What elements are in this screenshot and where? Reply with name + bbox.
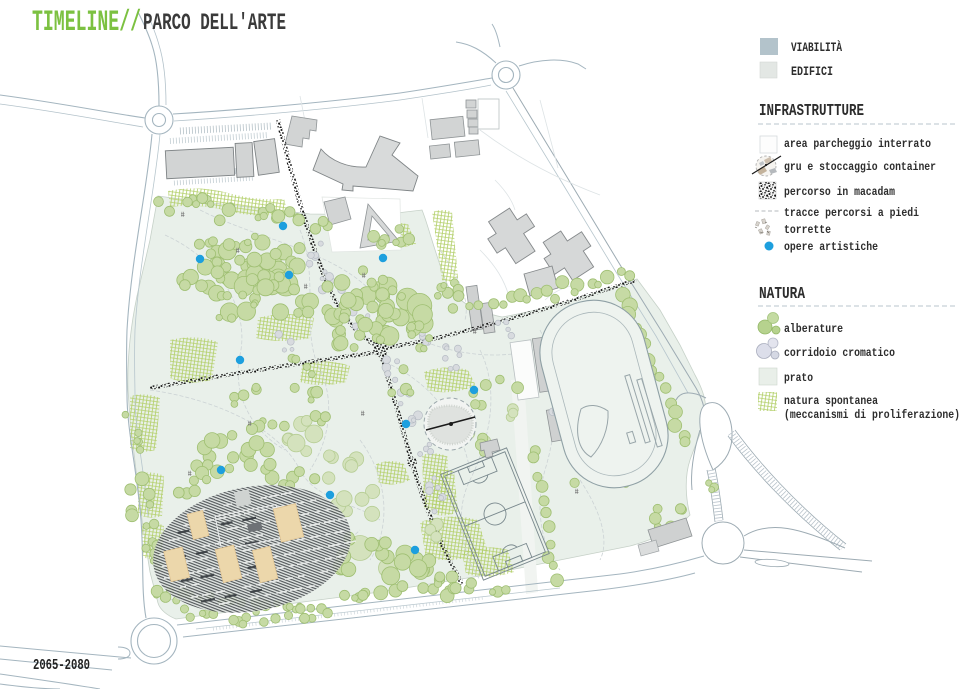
svg-text:2065-2080: 2065-2080 <box>33 657 90 674</box>
svg-text:gru e stoccaggio container: gru e stoccaggio container <box>784 160 936 174</box>
svg-text:(meccanismi di proliferazione): (meccanismi di proliferazione) <box>784 408 960 422</box>
svg-text:alberature: alberature <box>784 322 843 336</box>
svg-text:VIABILITÀ: VIABILITÀ <box>791 40 842 55</box>
svg-text:torrette: torrette <box>784 223 831 237</box>
svg-text:corridoio cromatico: corridoio cromatico <box>784 346 895 360</box>
svg-text:tracce percorsi a piedi: tracce percorsi a piedi <box>784 206 919 220</box>
svg-text:prato: prato <box>784 371 813 385</box>
svg-text:opere artistiche: opere artistiche <box>784 240 878 254</box>
svg-text:INFRASTRUTTURE: INFRASTRUTTURE <box>759 102 864 121</box>
svg-text:PARCO DELL'ARTE: PARCO DELL'ARTE <box>143 10 286 36</box>
svg-text:EDIFICI: EDIFICI <box>791 64 833 79</box>
svg-text:area parcheggio interrato: area parcheggio interrato <box>784 137 931 151</box>
svg-text:percorso in macadam: percorso in macadam <box>784 185 895 199</box>
svg-text:TIMELINE//: TIMELINE// <box>32 6 141 40</box>
svg-text:natura spontanea: natura spontanea <box>784 394 878 408</box>
svg-text:NATURA: NATURA <box>759 285 806 304</box>
